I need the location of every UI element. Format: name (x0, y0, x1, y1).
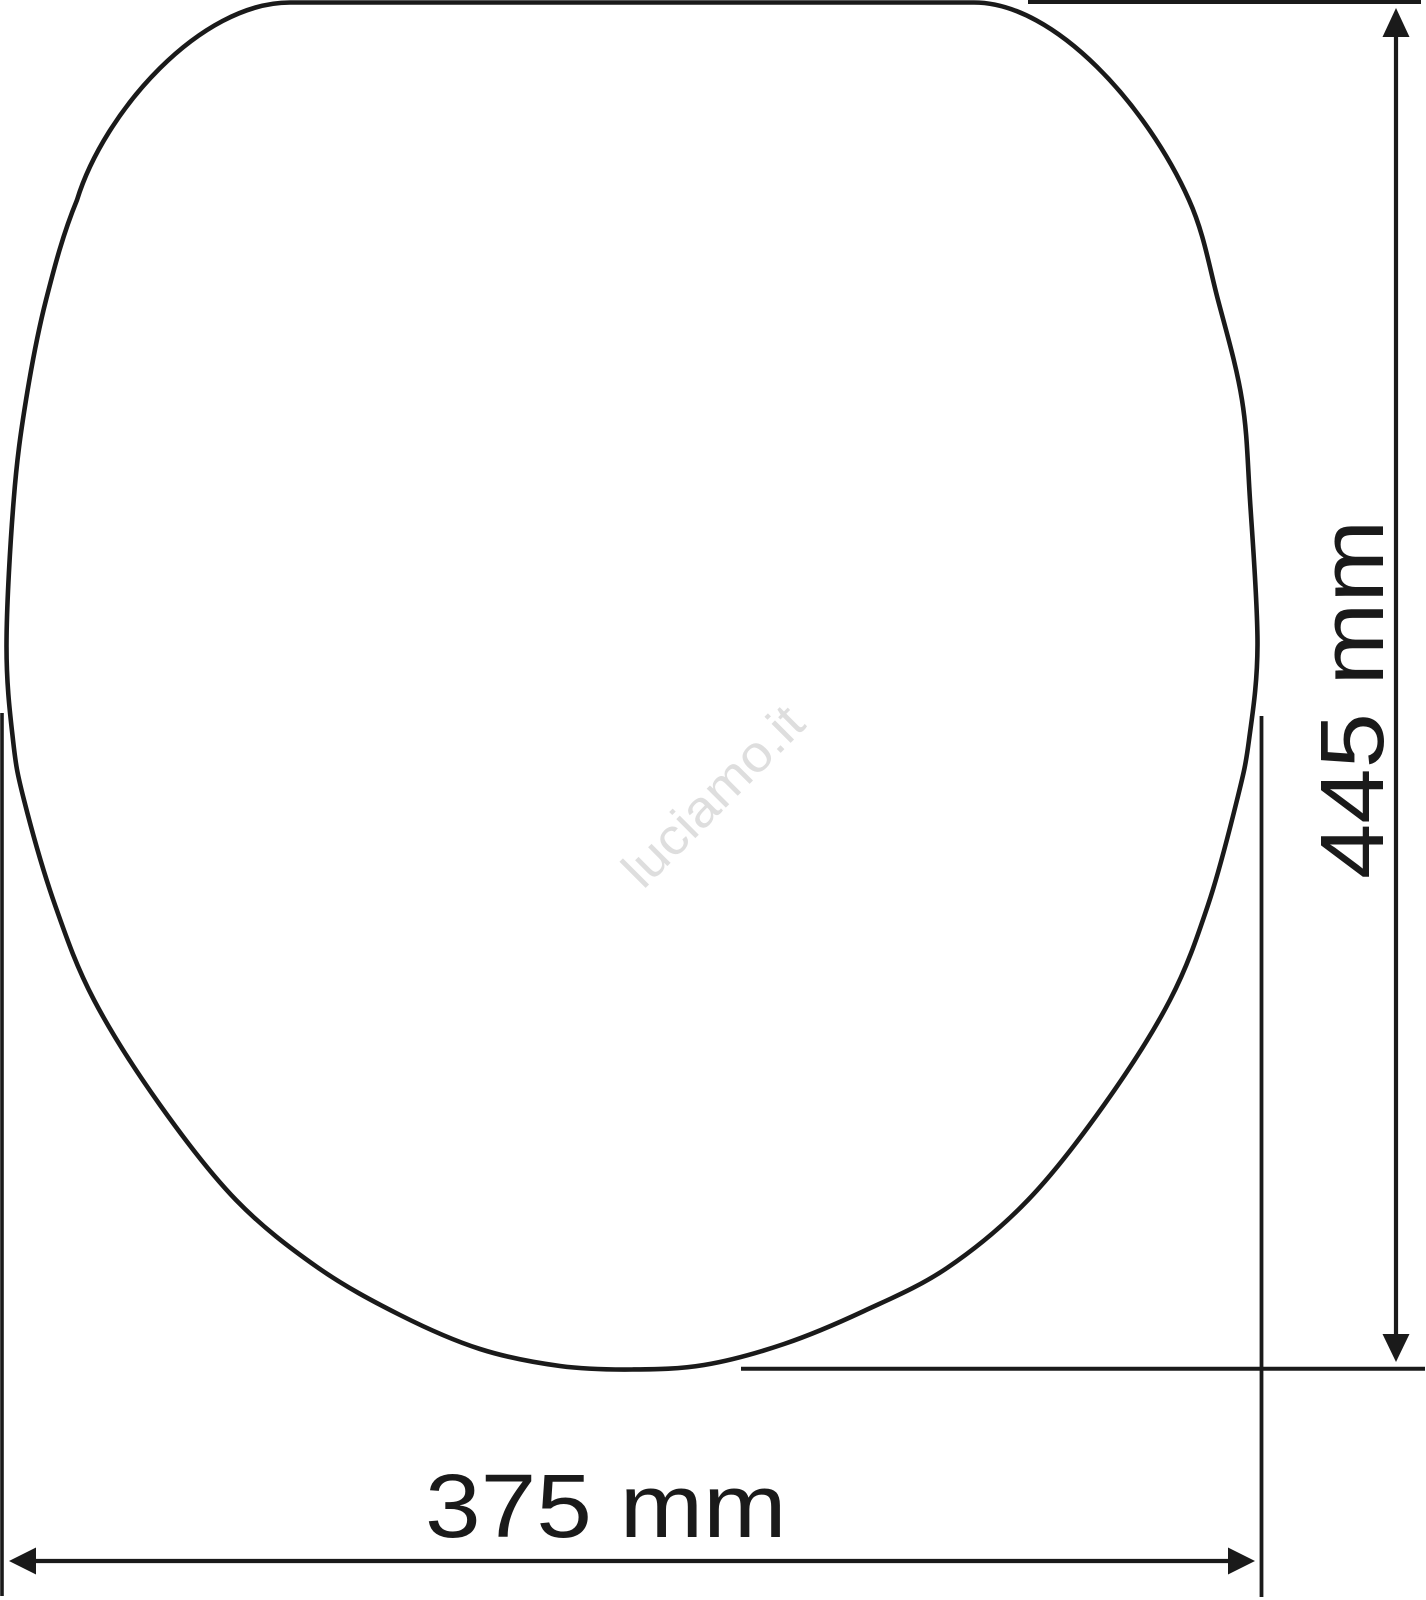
svg-text:375 mm: 375 mm (425, 1457, 786, 1557)
svg-text:445 mm: 445 mm (1302, 520, 1403, 879)
svg-text:luciamo.it: luciamo.it (611, 694, 816, 899)
